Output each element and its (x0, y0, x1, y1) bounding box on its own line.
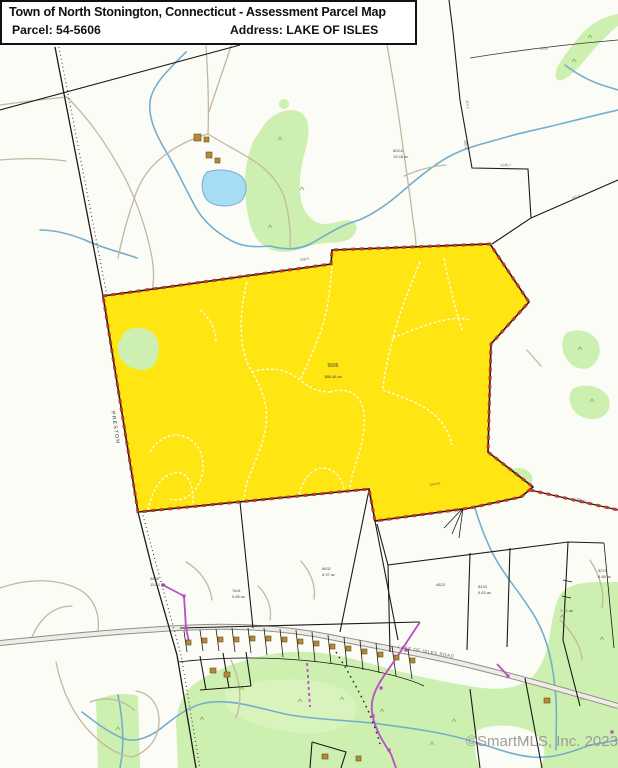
map-tiny-label: 80CA (393, 148, 403, 153)
map-tiny-label: 8.37 ac (322, 572, 335, 577)
map-tiny-label: 5846 (150, 576, 160, 581)
parcel-address-label: Address: LAKE OF ISLES (230, 23, 378, 37)
map-tiny-label: 7.12 ac (560, 608, 573, 613)
map-tiny-label: 8.88 ac (598, 574, 611, 579)
map-canvas: PRESTON LAKE OF ISLES ROAD 5606 386.48 a… (0, 0, 618, 768)
map-tiny-label: 8443 (478, 584, 488, 589)
map-title: Town of North Stonington, Connecticut - … (2, 2, 415, 19)
map-header: Town of North Stonington, Connecticut - … (0, 0, 417, 45)
subject-parcel-id-label: 5606 (327, 363, 338, 369)
map-tiny-label: 19.48 ac (393, 154, 408, 159)
map-tiny-label: 9.63 ac (478, 590, 491, 595)
pond (202, 170, 246, 206)
map-tiny-label: 260± (540, 46, 548, 51)
map-tiny-label: 5274 (598, 568, 608, 573)
header-row2: Parcel: 54-5606 Address: LAKE OF ISLES (2, 19, 415, 37)
parcel-number-label: Parcel: 54-5606 (12, 23, 101, 37)
map-tiny-label: 7641 (232, 588, 242, 593)
parcel-map-screenshot: PRESTON LAKE OF ISLES ROAD 5606 386.48 a… (0, 0, 618, 768)
map-tiny-label: 15.62 ac (150, 582, 165, 587)
map-tiny-label: 8632 (322, 566, 332, 571)
map-tiny-label: 9.85 ac (232, 594, 245, 599)
subject-parcel-area-label: 386.48 ac (324, 374, 342, 379)
map-tiny-label: 4823 (436, 582, 446, 587)
map-tiny-label: 1248.7 (500, 163, 511, 167)
watermark: ©SmartMLS, Inc. 2023 (466, 733, 618, 750)
